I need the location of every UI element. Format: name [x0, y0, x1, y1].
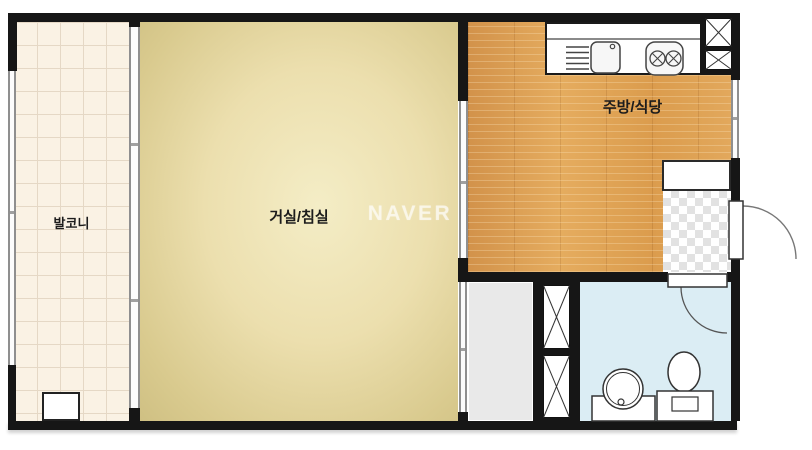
entrance-door-icon [729, 201, 796, 259]
floorplan-canvas: 발코니 거실/침실 주방/식당 NAVER [0, 0, 812, 450]
washbasin-icon [592, 369, 655, 421]
kitchen-dining-label: 주방/식당 [560, 96, 705, 117]
dish-rack-icon [566, 47, 589, 69]
duct-shaft-top-icon [700, 13, 737, 75]
gas-stove-icon [646, 42, 683, 75]
toilet-icon [657, 352, 713, 421]
kitchen-sink-icon [591, 42, 620, 73]
bathroom-door-icon [668, 274, 727, 333]
naver-watermark: NAVER [330, 202, 490, 226]
balcony-label: 발코니 [14, 213, 129, 232]
duct-shaft-bottom-icon [540, 282, 573, 421]
